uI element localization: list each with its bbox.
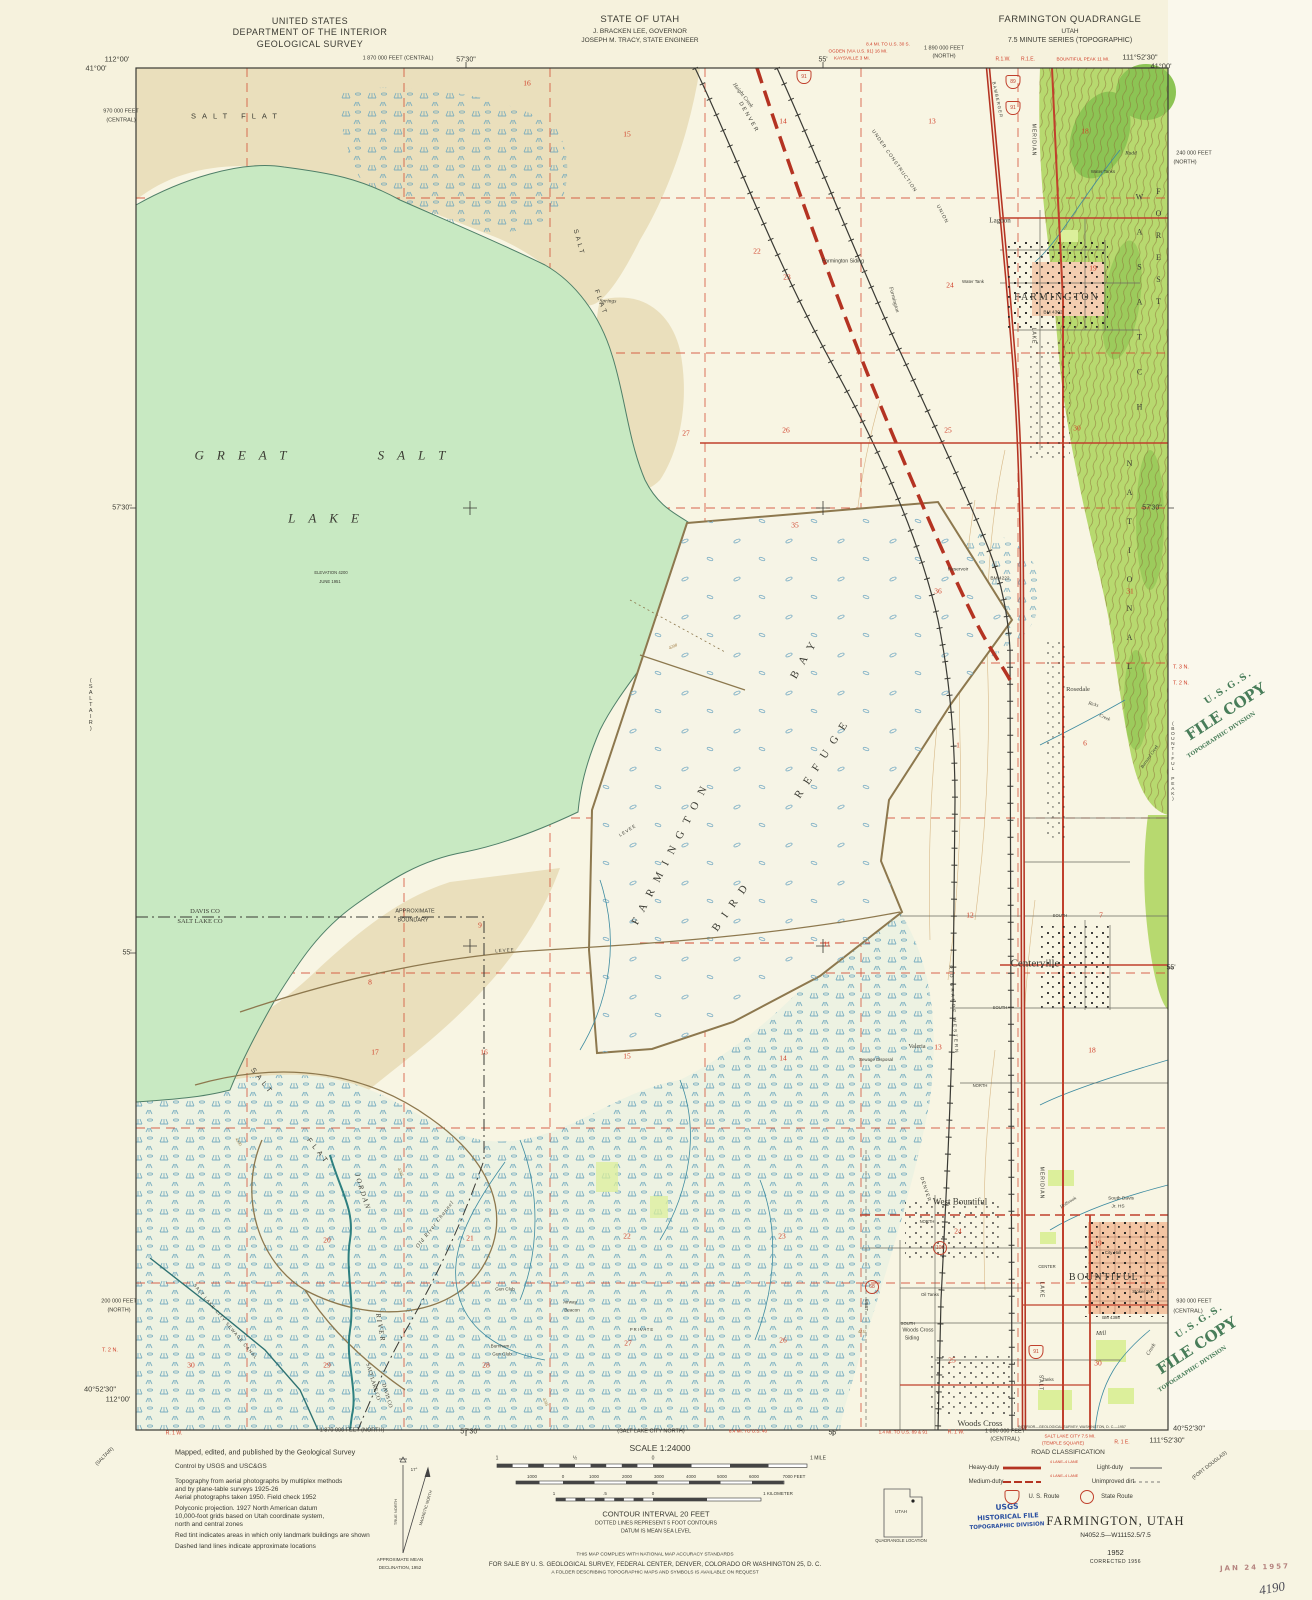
footer-label: 3000 [654, 1475, 664, 1480]
footer-label: 0 [652, 1492, 655, 1497]
map-label: Jr. HS [1111, 1206, 1124, 1211]
map-label: Springs [600, 299, 617, 305]
margin-label: 930 000 FEET [1176, 1299, 1211, 1305]
header-center-line1: STATE OF UTAH [520, 14, 760, 26]
map-label: SALT FLAT [191, 112, 283, 120]
header-center-line2: J. BRACKEN LEE, GOVERNOR [520, 28, 760, 36]
footer-label: 5000 [717, 1475, 727, 1480]
map-label: BM 4302 [1043, 312, 1062, 317]
map-label: Water Tank [962, 280, 984, 284]
footer-label: FOR SALE BY U. S. GEOLOGICAL SURVEY, FED… [489, 1562, 821, 1568]
section-number: 11 [823, 940, 830, 948]
margin-label: 1 870 000 FEET (CENTRAL) [363, 56, 434, 62]
footer-label: 4000 [686, 1475, 696, 1480]
map-label: SALT LAKE CO [177, 919, 222, 926]
map-label: WEST [864, 1299, 868, 1311]
footer-label: 10,000-foot grids based on Utah coordina… [175, 1514, 324, 1521]
map-label: MERIDIAN [1031, 124, 1036, 156]
map-label: LAKE [1031, 328, 1036, 345]
header-center-line3: JOSEPH M. TRACY, STATE ENGINEER [520, 37, 760, 45]
section-number: 13 [928, 117, 936, 125]
margin-label: OGDEN (VIA U.S. 91) 16 MI. [829, 50, 888, 55]
quad-title: FARMINGTON, UTAH [1023, 1514, 1208, 1529]
margin-label: 55' [122, 950, 131, 957]
map-label: Tanks [1042, 1378, 1053, 1382]
margin-label: 57'30" [460, 1429, 479, 1436]
map-label: LAKE [288, 512, 372, 525]
footer-label: State Route [1101, 1494, 1133, 1500]
footer-label: 1000 [527, 1475, 537, 1480]
footer-label: QUADRANGLE LOCATION [875, 1539, 927, 1543]
footer-label: Mapped, edited, and published by the Geo… [175, 1448, 355, 1455]
footer-label: north and central zones [175, 1522, 243, 1529]
map-label: Lagoon [989, 218, 1010, 225]
margin-label: 8.4 MI. TO U.S. 40 [729, 1430, 767, 1435]
margin-label: (SALTAIR) [87, 678, 93, 732]
footer-label: 0 [562, 1475, 565, 1480]
footer-label: 2000 [622, 1475, 632, 1480]
footer-label: Polyconic projection. 1927 North America… [175, 1506, 317, 1513]
section-number: 26 [782, 426, 790, 434]
margin-label: (TEMPLE SQUARE) [1042, 1442, 1084, 1447]
margin-label: 41°00' [1150, 62, 1171, 70]
section-number: 24 [954, 1227, 962, 1235]
footer-label: ½ [573, 1457, 577, 1462]
section-number: 27 [624, 1339, 632, 1347]
footer-label: 17° [411, 1468, 418, 1473]
margin-label: 55' [828, 1430, 837, 1437]
map-label: SOUTH [901, 1322, 916, 1326]
margin-label: T. 2 N. [1173, 681, 1189, 687]
map-label: SOUTH [1053, 914, 1068, 918]
margin-label: 112°00' [106, 1395, 131, 1403]
margin-label: T. 3 N. [1173, 665, 1189, 671]
map-label: Burnham [491, 1345, 510, 1350]
margin-label: BOUNTIFUL PEAK 11 MI. [1056, 58, 1109, 63]
footer-label: Dashed land lines indicate approximate l… [175, 1544, 316, 1551]
margin-label: (CENTRAL) [1173, 1309, 1202, 1315]
section-number: 20 [323, 1236, 331, 1244]
map-label: NORTH [920, 1220, 935, 1224]
state-route-marker [1080, 1490, 1094, 1504]
margin-label: T. 2 N. [102, 1348, 118, 1354]
header-right: FARMINGTON QUADRANGLE UTAH 7.5 MINUTE SE… [950, 14, 1190, 46]
margin-label: 240 000 FEET [1176, 151, 1211, 157]
margin-label: 40°52'30" [84, 1385, 116, 1393]
map-label: Rudd [1125, 151, 1137, 157]
section-number: 12 [966, 911, 974, 919]
margin-label: 111°52'30" [1149, 1436, 1184, 1444]
map-label: West Bountiful [933, 1198, 988, 1207]
map-label: Gun Club [495, 1288, 514, 1293]
map-label: NATIONAL [1125, 459, 1133, 691]
section-number: 22 [753, 247, 761, 255]
footer-label: 7000 FEET [783, 1475, 806, 1480]
section-number: 30 [1073, 424, 1081, 432]
footer-label: 1 [496, 1457, 499, 1462]
map-label: NORTH [973, 1084, 988, 1088]
margin-label: 112°00' [105, 55, 130, 63]
map-label: WASATCH [1135, 193, 1143, 438]
section-number: 23 [778, 1232, 786, 1240]
section-number: 23 [783, 273, 791, 281]
footer-label: Topography from aerial photographs by mu… [175, 1479, 342, 1486]
section-number: 19 [1094, 1239, 1102, 1247]
section-number: 1 [956, 741, 960, 749]
section-number: 15 [623, 130, 631, 138]
margin-label: 40°52'30" [1173, 1424, 1205, 1432]
section-number: 27 [682, 429, 690, 437]
map-label: BM 4398 [1102, 1316, 1120, 1320]
section-number: 18 [1088, 1046, 1096, 1054]
margin-label: R. 1 W. [948, 1431, 964, 1436]
map-label: LAKE [1039, 1282, 1044, 1299]
footer-label: SCALE 1:24000 [630, 1444, 691, 1453]
header-right-line2: UTAH [950, 28, 1190, 36]
map-label: BOUNTIFUL [1069, 1273, 1139, 1283]
margin-label: (SALT LAKE CITY NORTH) [617, 1429, 684, 1435]
map-label: SALT [378, 449, 459, 462]
margin-label: SALT LAKE CITY 7.5 MI. [1044, 1435, 1095, 1440]
map-label: DAVIS CO [190, 909, 220, 916]
footer-label: 1 MILE [810, 1457, 826, 1462]
margin-label: INTERIOR—GEOLOGICAL SURVEY, WASHINGTON, … [1018, 1426, 1126, 1430]
section-number: 26 [779, 1336, 787, 1344]
section-number: 28 [482, 1361, 490, 1369]
section-number: 6 [1083, 739, 1087, 747]
margin-label: 1 870 000 FEET (NORTH) [320, 1428, 385, 1434]
footer-label: Control by USGS and USC&GS [175, 1464, 267, 1471]
map-label: MERIDIAN [1039, 1167, 1044, 1199]
margin-label: 57'30" [112, 505, 131, 512]
margin-label: (CENTRAL) [106, 118, 135, 124]
quad-corrected: CORRECTED 1956 [1023, 1559, 1208, 1565]
section-number: 36 [934, 587, 942, 595]
map-label: BOUNDARY [397, 918, 428, 924]
footer-label: Light-duty [1097, 1465, 1123, 1471]
margin-label: 57'30" [1142, 505, 1161, 512]
footer-label: U. S. Route [1028, 1494, 1059, 1500]
margin-label: 970 000 FEET [103, 109, 138, 115]
footer-label: and by plane-table surveys 1925-26 [175, 1487, 278, 1494]
margin-label: 1 890 000 FEET [985, 1429, 1025, 1435]
section-number: 17 [371, 1048, 379, 1056]
section-number: 18 [1081, 127, 1089, 135]
margin-label: 8.4 MI. TO U.S. 30 S. [866, 43, 910, 48]
footer-label: DECLINATION, 1952 [379, 1566, 421, 1571]
footer-label: 1 [553, 1492, 556, 1497]
section-number: 24 [946, 281, 954, 289]
footer-label: 1 KILOMETER [763, 1492, 793, 1497]
map-label: Farmington Siding [822, 259, 864, 264]
footer-label: ROAD CLASSIFICATION [1031, 1450, 1105, 1457]
map-label: Water Tanks [1091, 170, 1115, 174]
section-number: 25 [944, 426, 952, 434]
footer-label: Medium-duty [969, 1479, 1004, 1485]
footer-label: UTAH [895, 1510, 907, 1515]
map-label: BM 4222 [990, 578, 1009, 583]
map-label: Mill [1096, 1331, 1106, 1337]
quad-year: 1952 [1023, 1548, 1208, 1557]
margin-label: 200 000 FEET [101, 1299, 136, 1305]
footer-label: CONTOUR INTERVAL 20 FEET [602, 1510, 709, 1518]
section-number: 14 [779, 117, 787, 125]
map-graphic [0, 0, 1312, 1600]
map-label: CENTER [1038, 1265, 1055, 1269]
footer-label: DOTTED LINES REPRESENT 5 FOOT CONTOURS [595, 1521, 717, 1526]
map-label: SOUTH [993, 1006, 1008, 1010]
title-block: FARMINGTON, UTAH N4052.5—W11152.5/7.5 19… [1023, 1514, 1208, 1565]
map-body [130, 62, 1176, 1436]
margin-label: R. 1 W. [166, 1432, 182, 1437]
section-number: 30 [1094, 1359, 1102, 1367]
map-label: Oil Tanks [921, 1293, 939, 1297]
map-label: APPROXIMATE [395, 909, 434, 915]
margin-label: R. 1 E. [1114, 1441, 1129, 1446]
margin-label: (CENTRAL) [990, 1437, 1019, 1443]
section-number: 13 [934, 1043, 942, 1051]
section-number: 31 [1126, 587, 1134, 595]
map-label: JUNE 1951 [319, 580, 340, 584]
footer-label: Red tint indicates areas in which only l… [175, 1533, 370, 1540]
footer-label: USGS [995, 1503, 1018, 1512]
map-label: Beacon [564, 1309, 580, 1314]
margin-label: 1.4 MI. TO U.S. 89 & 91 [879, 1431, 928, 1436]
section-number: 8 [368, 978, 372, 986]
map-label: Rosedale [1066, 687, 1090, 694]
footer-label: 4 LANE–4 LANE [1050, 1475, 1078, 1479]
footer-label: 4 LANE–4 LANE [1050, 1461, 1078, 1465]
section-number: 21 [466, 1234, 474, 1242]
map-label: Siding [905, 1336, 919, 1341]
margin-label: (NORTH) [1173, 160, 1196, 166]
margin-label: (NORTH) [107, 1308, 130, 1314]
margin-label: 55' [818, 57, 827, 64]
map-label: Valeria [909, 1044, 926, 1050]
section-number: 35 [791, 521, 799, 529]
footer-label: DATUM IS MEAN SEA LEVEL [621, 1529, 691, 1534]
map-label: Airway [563, 1301, 577, 1306]
section-number: 14 [779, 1054, 787, 1062]
section-number: 22 [623, 1232, 631, 1240]
footer-label: TRUE NORTH [394, 1499, 398, 1525]
footer-label: Aerial photographs taken 1950. Field che… [175, 1495, 316, 1502]
margin-label: R.1.W. [995, 58, 1010, 63]
state-route-marker: 68 [865, 1280, 879, 1294]
header-right-line1: FARMINGTON QUADRANGLE [950, 14, 1190, 26]
footer-label: Heavy-duty [969, 1465, 999, 1471]
footer-label: A FOLDER DESCRIBING TOPOGRAPHIC MAPS AND… [551, 1572, 758, 1577]
section-number: 16 [480, 1048, 488, 1056]
map-label: Centerville [1011, 959, 1060, 970]
margin-label: KAYSVILLE 3 MI. [834, 57, 870, 62]
margin-label: (BOUNTIFUL PEAK) [1170, 722, 1175, 802]
margin-label: (NORTH) [932, 54, 955, 60]
map-label: Reservoir [948, 569, 969, 574]
footer-label: THIS MAP COMPLIES WITH NATIONAL MAP ACCU… [576, 1554, 733, 1559]
margin-label: 111°52'30" [1122, 53, 1157, 61]
section-number: 9 [478, 921, 482, 929]
section-number: 29 [323, 1361, 331, 1369]
header-left-line3: GEOLOGICAL SURVEY [170, 39, 450, 50]
map-label: SALT [1038, 1375, 1043, 1391]
margin-label: 41°00' [85, 64, 106, 72]
map-label: 4211 [858, 1330, 866, 1334]
header-left-line2: DEPARTMENT OF THE INTERIOR [170, 27, 450, 38]
map-label: Stoker Sch [1132, 1290, 1153, 1294]
section-number: 19 [1089, 264, 1097, 272]
map-label: City Hall [1105, 1251, 1121, 1255]
map-label: Sewage Disposal [859, 1058, 893, 1062]
quad-coordinates: N4052.5—W11152.5/7.5 [1023, 1532, 1208, 1539]
margin-label: 57'30" [456, 57, 475, 64]
margin-label: R.1.E. [1021, 58, 1035, 63]
footer-label: 6000 [749, 1475, 759, 1480]
map-label: FOREST [1154, 187, 1162, 319]
margin-label: 55' [1166, 965, 1175, 972]
section-number: 30 [187, 1361, 195, 1369]
footer-label: 1000 [589, 1475, 599, 1480]
map-label: Woods Cross [902, 1328, 933, 1333]
map-label: GREAT [195, 449, 300, 462]
section-number: 25 [948, 1356, 956, 1364]
footer-label: Unimproved dirt [1092, 1479, 1134, 1485]
header-center: STATE OF UTAH J. BRACKEN LEE, GOVERNOR J… [520, 14, 760, 45]
map-label: Woods Cross [958, 1419, 1003, 1428]
state-route-marker: 106 [933, 1241, 947, 1255]
map-label: PRIVATE [630, 1328, 654, 1332]
map-label: ELEVATION 4200 [314, 571, 347, 575]
header-left: UNITED STATES DEPARTMENT OF THE INTERIOR… [170, 16, 450, 50]
section-number: 7 [1099, 911, 1103, 919]
section-number: 16 [523, 79, 531, 87]
footer-label: .5 [603, 1492, 607, 1497]
margin-label: 1 890 000 FEET [924, 46, 964, 52]
header-right-line3: 7.5 MINUTE SERIES (TOPOGRAPHIC) [950, 37, 1190, 46]
section-number: 15 [623, 1052, 631, 1060]
map-sheet: UNITED STATES DEPARTMENT OF THE INTERIOR… [0, 0, 1312, 1600]
map-label: South Davis [1108, 1198, 1134, 1203]
footer-label: APPROXIMATE MEAN [377, 1558, 423, 1563]
footer-label: 0 [652, 1457, 655, 1462]
map-label: FARMINGTON [1014, 293, 1100, 303]
map-label: Gun Club [492, 1353, 511, 1358]
header-left-line1: UNITED STATES [170, 16, 450, 27]
